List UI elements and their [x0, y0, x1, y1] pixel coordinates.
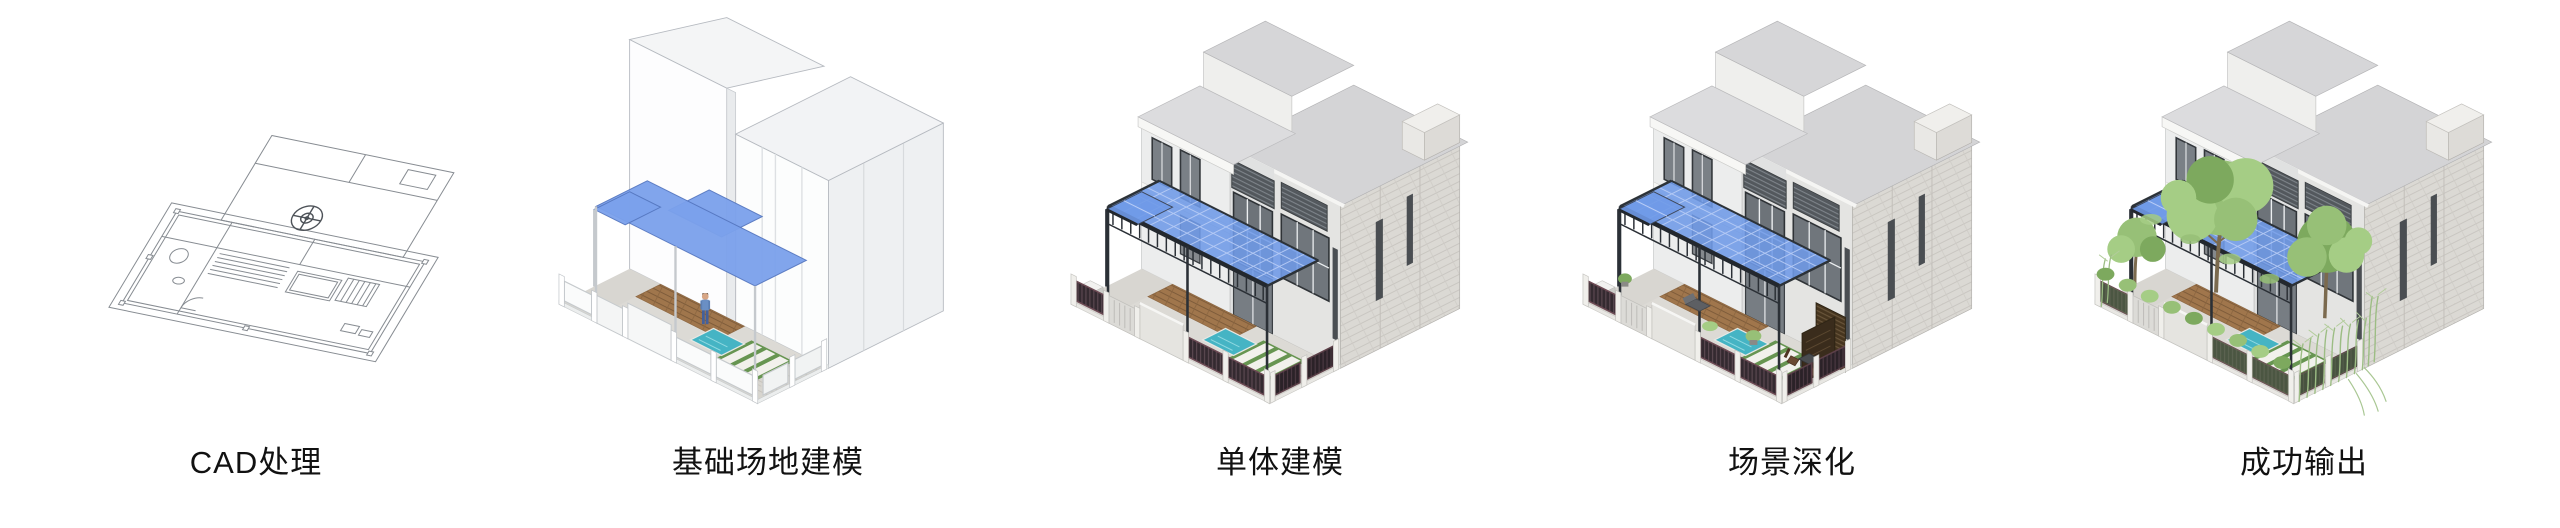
stage-scene-refinement: 场景深化 [1536, 0, 2048, 528]
stage-site-massing: 基础场地建模 [512, 0, 1024, 528]
unit-model [1045, 0, 1515, 425]
stage-unit-art [1024, 0, 1536, 425]
stage-label: 基础场地建模 [672, 425, 864, 528]
final-model [2069, 0, 2539, 425]
stage-final-output: 成功输出 [2048, 0, 2560, 528]
stage-scene-art [1536, 0, 2048, 425]
cad-plan-group [109, 125, 485, 362]
massing-model [533, 0, 1003, 425]
cad-plan-drawing [21, 0, 491, 425]
stage-massing-art [512, 0, 1024, 425]
workflow-strip: CAD处理 [0, 0, 2560, 528]
stage-cad-art [0, 0, 512, 425]
stage-unit-modeling: 单体建模 [1024, 0, 1536, 528]
stage-label: 成功输出 [2240, 425, 2368, 528]
stage-final-art [2048, 0, 2560, 425]
stage-label: CAD处理 [190, 425, 322, 528]
stage-label: 单体建模 [1216, 425, 1344, 528]
stage-label: 场景深化 [1728, 425, 1856, 528]
scene-model [1557, 0, 2027, 425]
stage-cad-processing: CAD处理 [0, 0, 512, 528]
